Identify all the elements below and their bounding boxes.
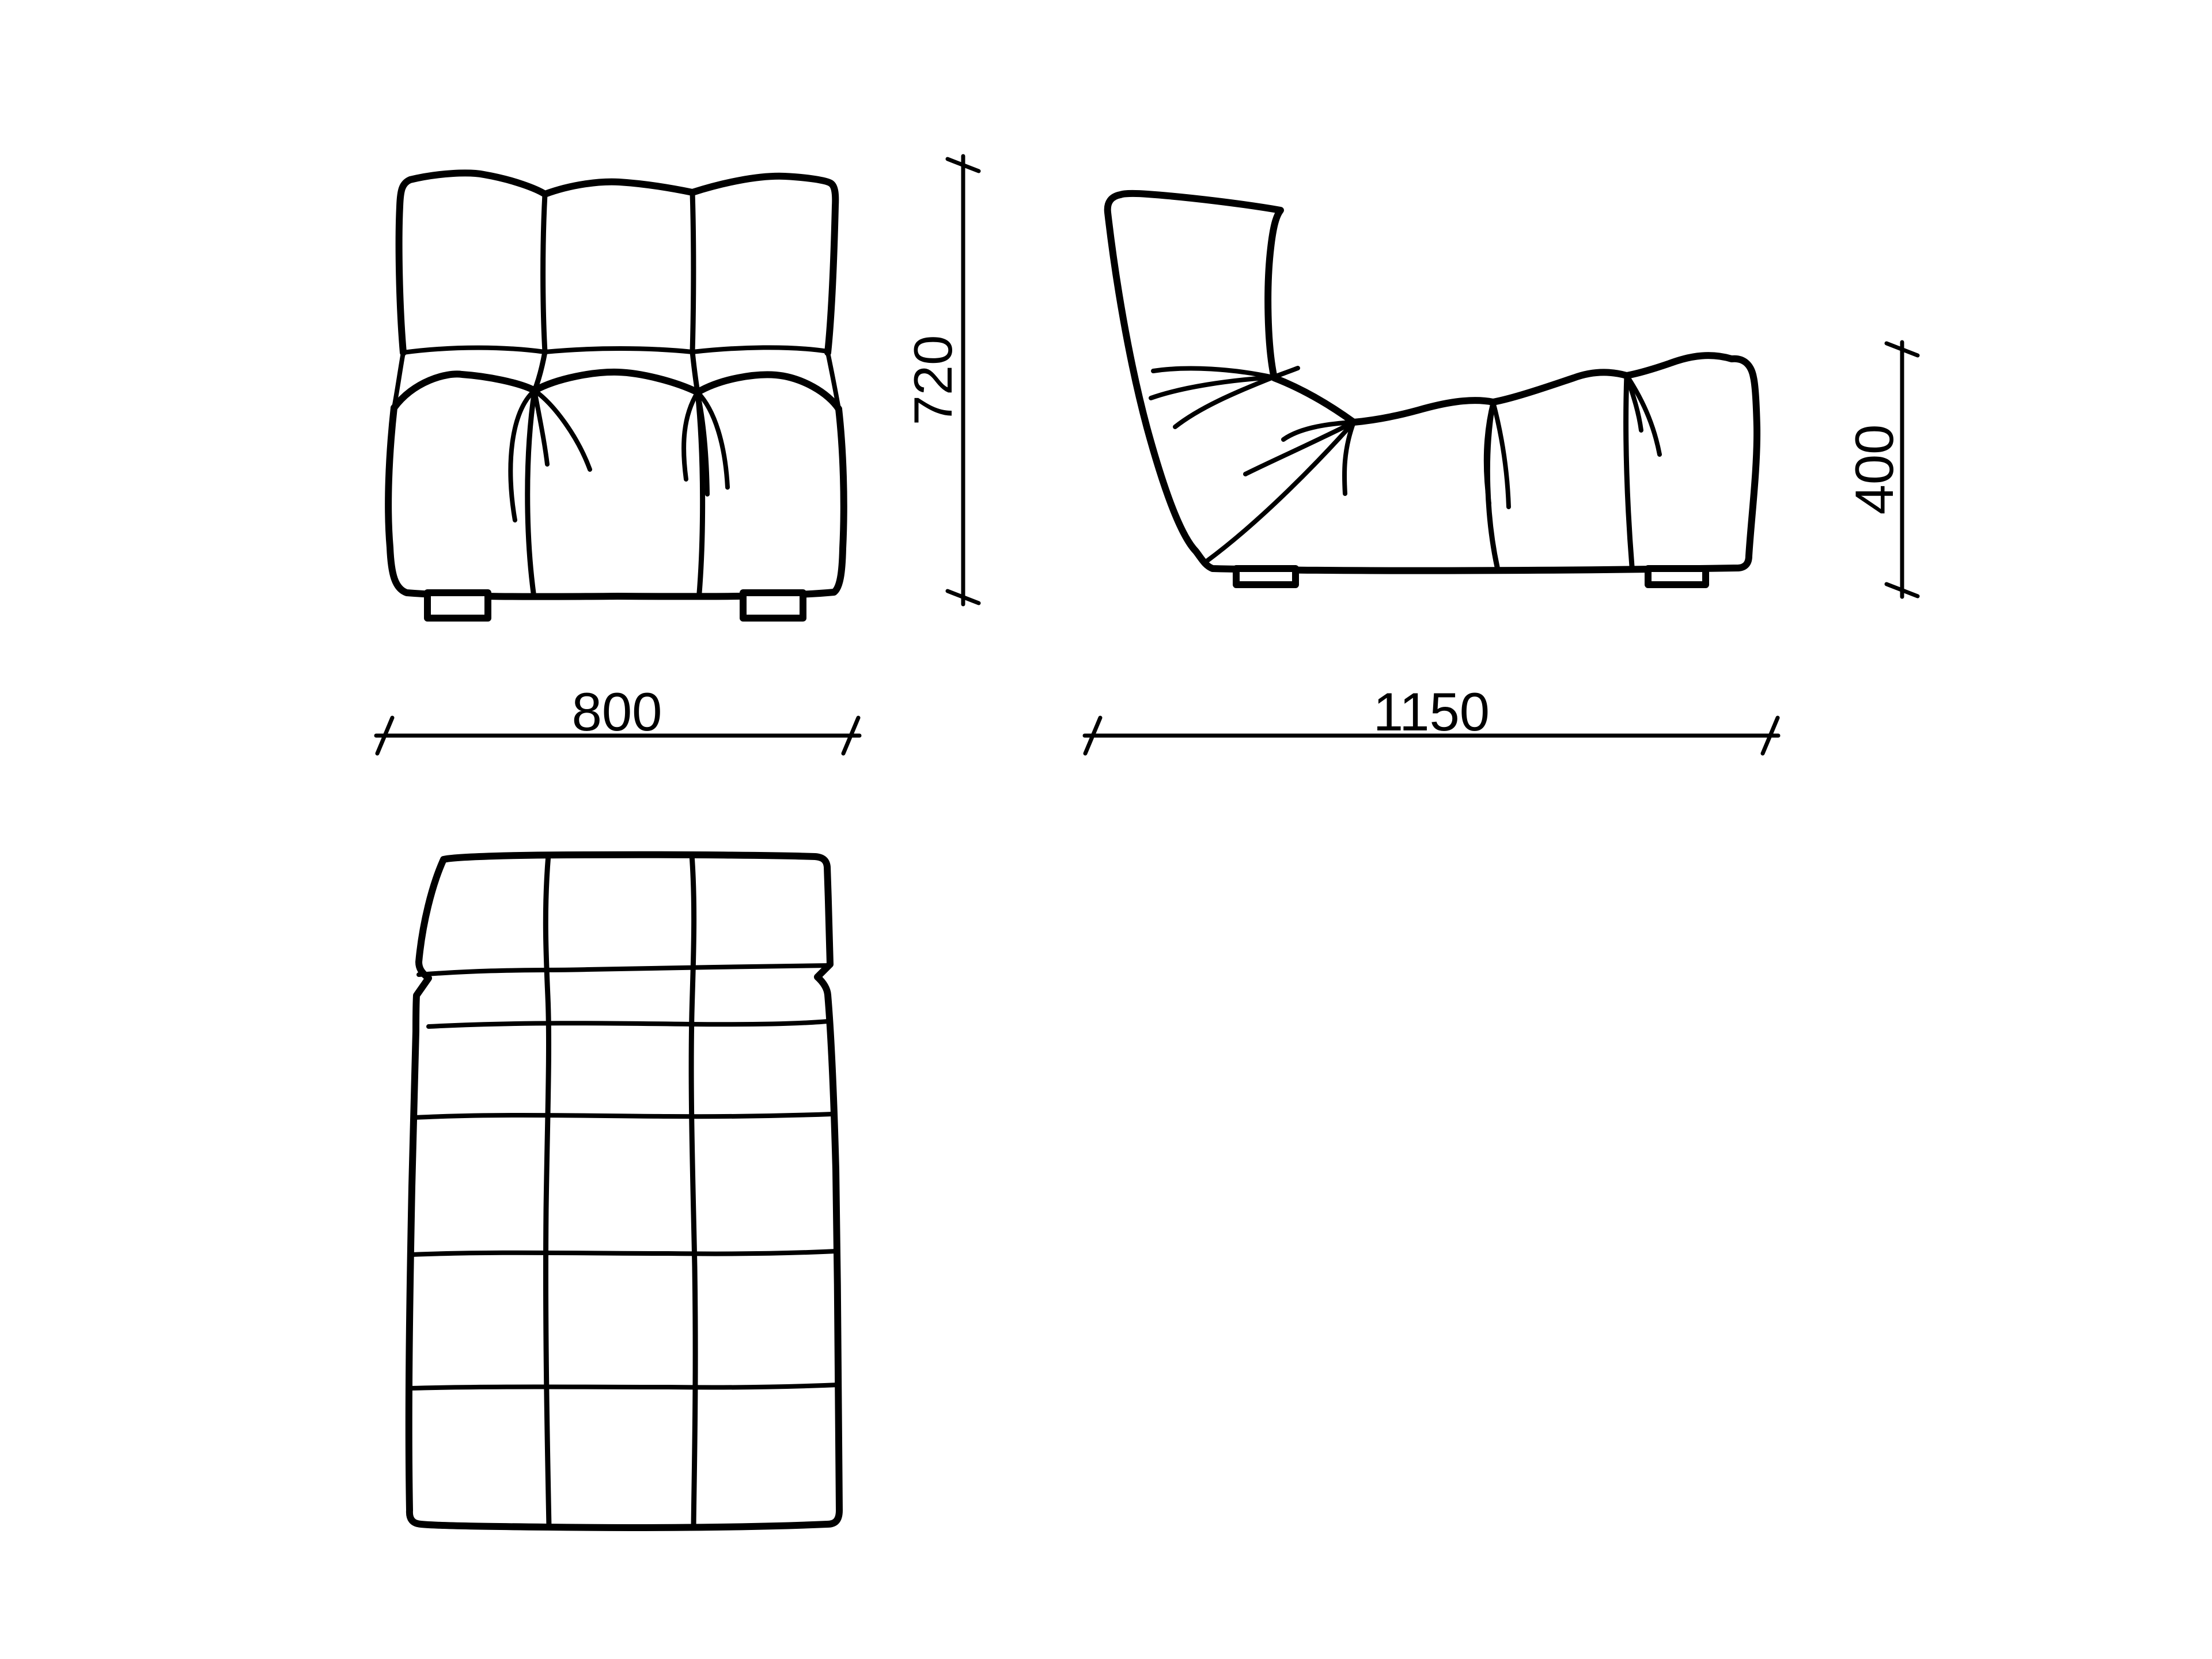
- dimension-seat-height: 400: [1844, 342, 1918, 597]
- front-band-divider-right: [692, 352, 698, 392]
- front-seat-divider-left: [528, 391, 535, 593]
- furniture-orthographic-drawing: 720 400 800 1150: [0, 0, 2212, 1659]
- side-view: [1108, 194, 1757, 585]
- front-backrest-divider-right: [692, 192, 694, 352]
- dimension-height: 720: [903, 156, 979, 604]
- top-divider-right: [691, 855, 695, 1527]
- side-seat-back-crease: [1207, 422, 1354, 561]
- side-seat-tuft-middle: [1486, 402, 1509, 567]
- side-body-outline: [1108, 194, 1757, 571]
- front-foot-left: [427, 593, 488, 618]
- top-seam-1: [419, 965, 830, 975]
- tuft-strand: [1151, 377, 1273, 398]
- front-tuft-knot-left: [510, 391, 590, 593]
- front-backrest-divider-left: [543, 194, 545, 352]
- top-seam-2: [429, 1021, 828, 1027]
- side-junction-tuft: [1245, 422, 1354, 494]
- side-backrest-tuft: [1151, 368, 1298, 427]
- top-seam-3: [415, 1114, 832, 1118]
- top-outline: [409, 855, 839, 1528]
- front-foot-right: [743, 593, 803, 618]
- dimension-height-label: 720: [903, 335, 963, 426]
- top-divider-left: [546, 855, 549, 1527]
- tuft-strand: [1627, 376, 1660, 454]
- side-seat-divider: [1626, 376, 1632, 566]
- side-foot-front: [1648, 569, 1706, 585]
- dimension-width-label: 800: [572, 681, 662, 742]
- tuft-strand: [1273, 368, 1298, 377]
- front-tuft-knot-right: [684, 392, 728, 593]
- front-view: [388, 173, 844, 618]
- front-seat-humps: [394, 372, 839, 409]
- tuft-strand: [1175, 377, 1273, 427]
- top-view: [409, 855, 839, 1528]
- side-seat-tuft-front: [1626, 376, 1660, 566]
- front-backrest-tuft-crease: [403, 347, 828, 353]
- dimension-depth-label: 1150: [1373, 681, 1490, 742]
- front-seat-outline: [388, 408, 844, 597]
- dimension-seat-height-label: 400: [1844, 425, 1904, 515]
- dimension-width: 800: [376, 681, 859, 753]
- tuft-strand: [684, 392, 698, 479]
- dimension-depth: 1150: [1085, 681, 1778, 753]
- front-backrest-outline: [399, 173, 836, 353]
- top-seam-4: [412, 1251, 836, 1255]
- side-foot-back: [1236, 569, 1296, 585]
- technical-drawing-page: 720 400 800 1150: [0, 0, 2212, 1659]
- tuft-strand: [1493, 402, 1509, 507]
- top-seam-5: [410, 1385, 839, 1388]
- tuft-strand: [1153, 369, 1273, 377]
